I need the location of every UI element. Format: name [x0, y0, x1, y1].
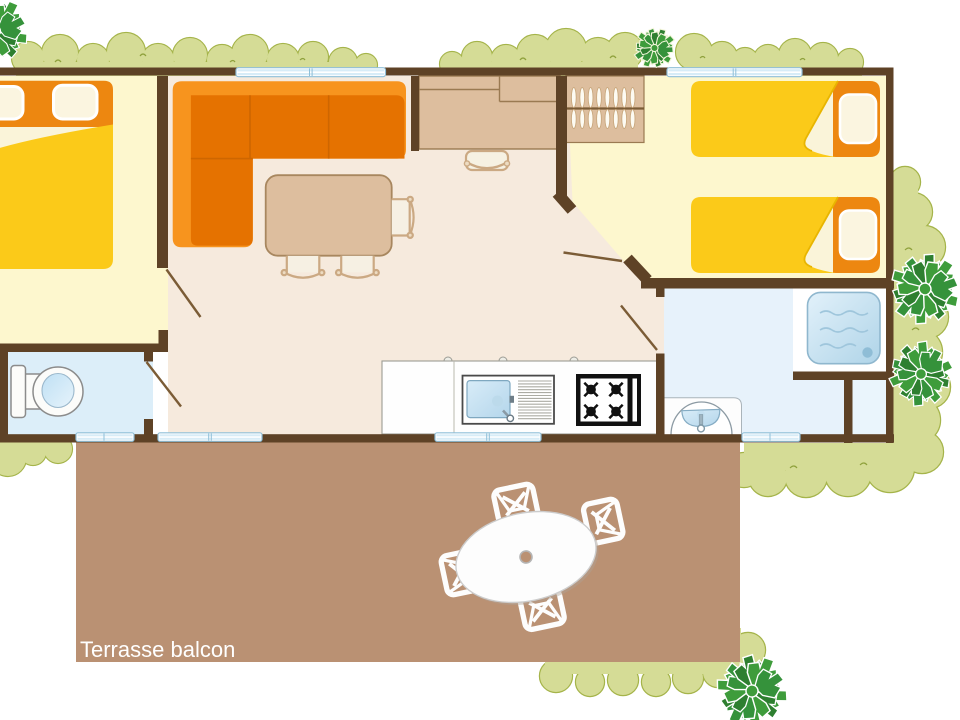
svg-text:Terrasse balcon: Terrasse balcon: [80, 637, 235, 662]
